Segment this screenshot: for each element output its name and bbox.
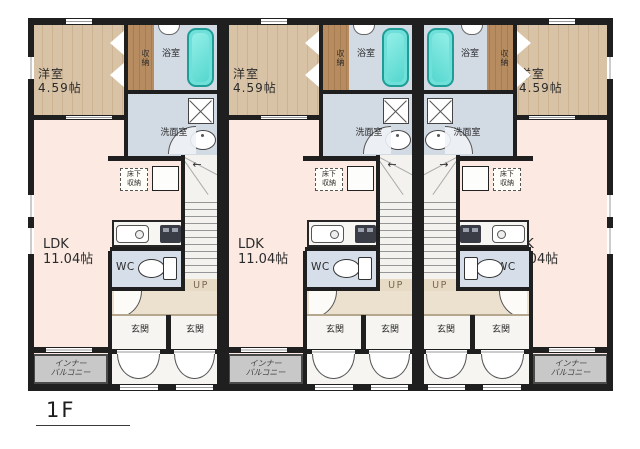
unit-3: 洋室 4.59帖 収納 浴室 洗面室 LDK 11.04帖 床下 収納 <box>418 18 613 391</box>
toilet-bowl <box>476 259 503 278</box>
wall <box>456 155 460 310</box>
stairs-treads <box>185 196 217 279</box>
side-window <box>28 228 34 254</box>
kitchen-sink <box>116 225 149 243</box>
wall <box>181 155 185 310</box>
party-wall <box>418 18 424 391</box>
closet-label: 収納 <box>327 35 345 81</box>
wall <box>424 90 513 94</box>
wall <box>529 251 533 291</box>
kitchen-counter <box>458 220 529 247</box>
stove <box>355 225 376 243</box>
unit-2: 洋室 4.59帖 収納 浴室 洗面室 LDK 11.04帖 床下 収納 <box>223 18 418 391</box>
washroom-label: 洗面室 <box>343 128 395 138</box>
wall <box>303 291 307 384</box>
washroom-label: 洗面室 <box>148 128 200 138</box>
wall <box>303 251 307 291</box>
party-wall <box>223 18 229 391</box>
closet-label: 収納 <box>132 35 150 81</box>
ldk-size: 11.04帖 <box>238 253 288 268</box>
side-window <box>28 57 34 79</box>
kitchen-counter <box>112 220 183 247</box>
kitchen-sink <box>311 225 344 243</box>
cabinet <box>347 166 374 191</box>
bathroom-label: 浴室 <box>154 49 188 59</box>
inner-balcony-label: インナー バルコニー <box>33 359 108 377</box>
ldk-size: 11.04帖 <box>43 253 93 268</box>
western-room-label: 洋室 4.59帖 <box>519 54 603 95</box>
bathtub <box>382 28 409 87</box>
ldk-name: LDK <box>238 238 264 253</box>
threshold <box>176 385 213 390</box>
bathtub <box>427 28 454 87</box>
entrance-right-label: 玄関 <box>369 325 411 335</box>
wall <box>108 251 112 291</box>
toilet-bowl <box>138 259 165 278</box>
entrance-left-label: 玄関 <box>313 325 357 335</box>
stairs-treads <box>424 196 456 279</box>
toilet-bowl <box>333 259 360 278</box>
underfloor-storage-label: 床下 収納 <box>120 170 148 188</box>
unit-1: 洋室 4.59帖 収納 浴室 洗面室 LDK 11.04帖 床下 収納 <box>28 18 223 391</box>
sliding-door <box>261 116 307 119</box>
threshold <box>483 385 521 390</box>
threshold <box>371 385 408 390</box>
threshold <box>120 385 158 390</box>
entrance-right-label: 玄関 <box>174 325 216 335</box>
underfloor-storage-label: 床下 収納 <box>493 170 521 188</box>
washer-pan <box>427 98 453 124</box>
entrance-step <box>424 314 529 316</box>
entrance-left-label: 玄関 <box>118 325 162 335</box>
western-room-label: 洋室 4.59帖 <box>38 54 122 95</box>
stairs-direction-arrow: ← <box>186 159 208 172</box>
side-window <box>607 195 613 217</box>
ldk-window <box>46 348 92 352</box>
stairs-direction-arrow: → <box>433 159 455 172</box>
closet-label: 収納 <box>491 35 509 81</box>
entrance-step <box>112 314 217 316</box>
western-room-name: 洋室 <box>38 68 64 82</box>
top-window <box>261 19 287 24</box>
entrance-left-label: 玄関 <box>479 325 523 335</box>
toilet-tank <box>464 257 478 280</box>
western-room-size: 4.59帖 <box>519 82 563 96</box>
floor-plan: 洋室 4.59帖 収納 浴室 洗面室 LDK 11.04帖 床下 収納 <box>0 0 640 449</box>
cabinet <box>152 166 179 191</box>
kitchen-sink <box>492 225 525 243</box>
toilet-tank <box>358 257 372 280</box>
washer-pan <box>383 98 409 124</box>
western-room-size: 4.59帖 <box>233 82 277 96</box>
side-window <box>607 57 613 79</box>
top-window <box>66 19 92 24</box>
stairs-direction-arrow: ← <box>381 159 403 172</box>
western-room-label: 洋室 4.59帖 <box>233 54 317 95</box>
ldk-window <box>549 348 595 352</box>
ldk-name: LDK <box>43 238 69 253</box>
stairs-treads <box>380 196 412 279</box>
bathroom-label: 浴室 <box>349 49 383 59</box>
outer-wall <box>418 18 613 25</box>
floor-label: 1F <box>36 398 130 426</box>
wall <box>376 155 380 310</box>
inner-balcony-label: インナー バルコニー <box>228 359 303 377</box>
threshold <box>315 385 353 390</box>
washer-pan <box>188 98 214 124</box>
entrance-right-label: 玄関 <box>425 325 467 335</box>
inner-balcony-label: インナー バルコニー <box>533 359 608 377</box>
wall <box>128 90 217 94</box>
wall <box>108 291 112 384</box>
top-window <box>549 19 575 24</box>
cabinet <box>462 166 489 191</box>
entrance-step <box>307 314 412 316</box>
ldk-window <box>241 348 287 352</box>
bathtub <box>187 28 214 87</box>
stove <box>460 225 481 243</box>
outer-wall <box>28 18 223 25</box>
wall <box>513 25 517 156</box>
sliding-door <box>66 116 112 119</box>
wall <box>323 90 412 94</box>
sliding-door <box>529 116 575 119</box>
western-room-name: 洋室 <box>233 68 259 82</box>
toilet-tank <box>163 257 177 280</box>
western-room-size: 4.59帖 <box>38 82 82 96</box>
stove <box>160 225 181 243</box>
side-window <box>28 195 34 217</box>
washroom-label: 洗面室 <box>441 128 493 138</box>
side-window <box>607 228 613 254</box>
bathroom-label: 浴室 <box>453 49 487 59</box>
threshold <box>428 385 465 390</box>
outer-wall <box>223 18 418 25</box>
kitchen-counter <box>307 220 378 247</box>
underfloor-storage-label: 床下 収納 <box>315 170 343 188</box>
